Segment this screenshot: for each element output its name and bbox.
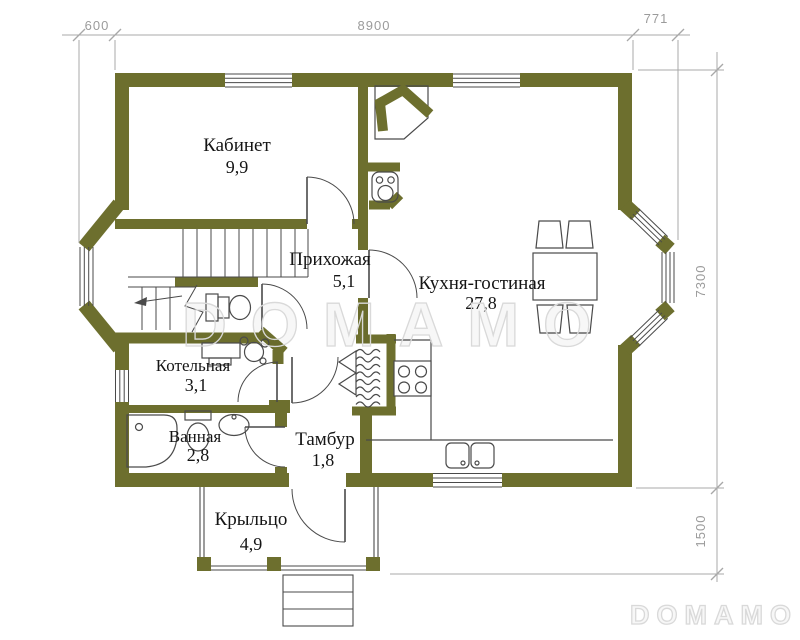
label-kitchen: Кухня-гостиная	[418, 273, 545, 294]
dim-label-8900: 8900	[358, 18, 391, 33]
porch-pillar	[366, 557, 380, 571]
window-top-right	[453, 74, 520, 87]
area-kitchen: 27,8	[465, 293, 497, 313]
area-kotelnaya: 3,1	[185, 375, 208, 395]
window-bay-right-middle	[662, 252, 674, 303]
porch-pillar	[267, 557, 281, 571]
dim-label-771: 771	[644, 11, 669, 26]
kitchen-sink-icon	[446, 443, 494, 468]
stair-arrow-head	[134, 297, 147, 306]
room-labels: Кабинет 9,9 Прихожая 5,1 Кухня-гостиная …	[156, 135, 546, 554]
door-wc	[262, 284, 307, 329]
door-kitchen	[369, 250, 417, 298]
floor-plan-page: 600 8900 771 7300 1500 Кабинет 9,9 Прихо…	[0, 0, 800, 640]
fireplace-icon	[375, 86, 430, 139]
closet-hangers-icon	[339, 350, 380, 408]
closet-bifold-door	[339, 373, 356, 395]
area-vannaya: 2,8	[187, 445, 210, 465]
area-kabinet: 9,9	[226, 157, 249, 177]
porch	[197, 487, 380, 626]
wall-bay-right-stub-1	[625, 205, 636, 215]
wc-toilet-icon	[206, 294, 251, 321]
area-prihozhaya: 5,1	[333, 271, 356, 291]
stair-break-line	[185, 285, 203, 332]
closet-bifold-door	[339, 351, 356, 373]
label-kotelnaya: Котельная	[156, 356, 231, 375]
floor-plan-drawing: 600 8900 771 7300 1500 Кабинет 9,9 Прихо…	[0, 0, 800, 640]
door-tambur	[292, 357, 338, 403]
door-entrance	[292, 489, 345, 542]
dim-label-7300: 7300	[693, 265, 708, 298]
door-kotelnaya	[238, 362, 278, 402]
porch-steps	[283, 575, 353, 626]
door-kabinet	[307, 177, 354, 224]
wall-bay-left-lower-angle	[84, 305, 119, 348]
porch-pillar	[197, 557, 211, 571]
window-bay-left	[80, 247, 93, 306]
label-krylco: Крыльцо	[215, 509, 288, 530]
label-vannaya: Ванная	[169, 427, 222, 446]
door-vannaya	[245, 427, 285, 467]
label-kabinet: Кабинет	[203, 135, 271, 156]
window-bottom-kitchen	[433, 474, 502, 488]
wall-kotelnaya-chamfer	[260, 331, 284, 352]
label-tambur: Тамбур	[295, 429, 355, 450]
area-krylco: 4,9	[240, 534, 263, 554]
window-top-left	[225, 74, 292, 87]
room-regions	[128, 87, 618, 567]
stove-icon	[394, 361, 431, 396]
window-kotelnaya	[116, 370, 129, 402]
windows	[80, 74, 674, 487]
wall-bay-right-stub-4	[625, 340, 636, 350]
exterior-walls	[84, 73, 670, 487]
washbasin-icon	[219, 415, 249, 436]
area-tambur: 1,8	[312, 450, 335, 470]
dim-label-1500: 1500	[693, 515, 708, 548]
label-prihozhaya: Прихожая	[289, 249, 371, 270]
dim-label-600: 600	[85, 18, 110, 33]
wall-bay-left-upper-angle	[84, 204, 119, 247]
